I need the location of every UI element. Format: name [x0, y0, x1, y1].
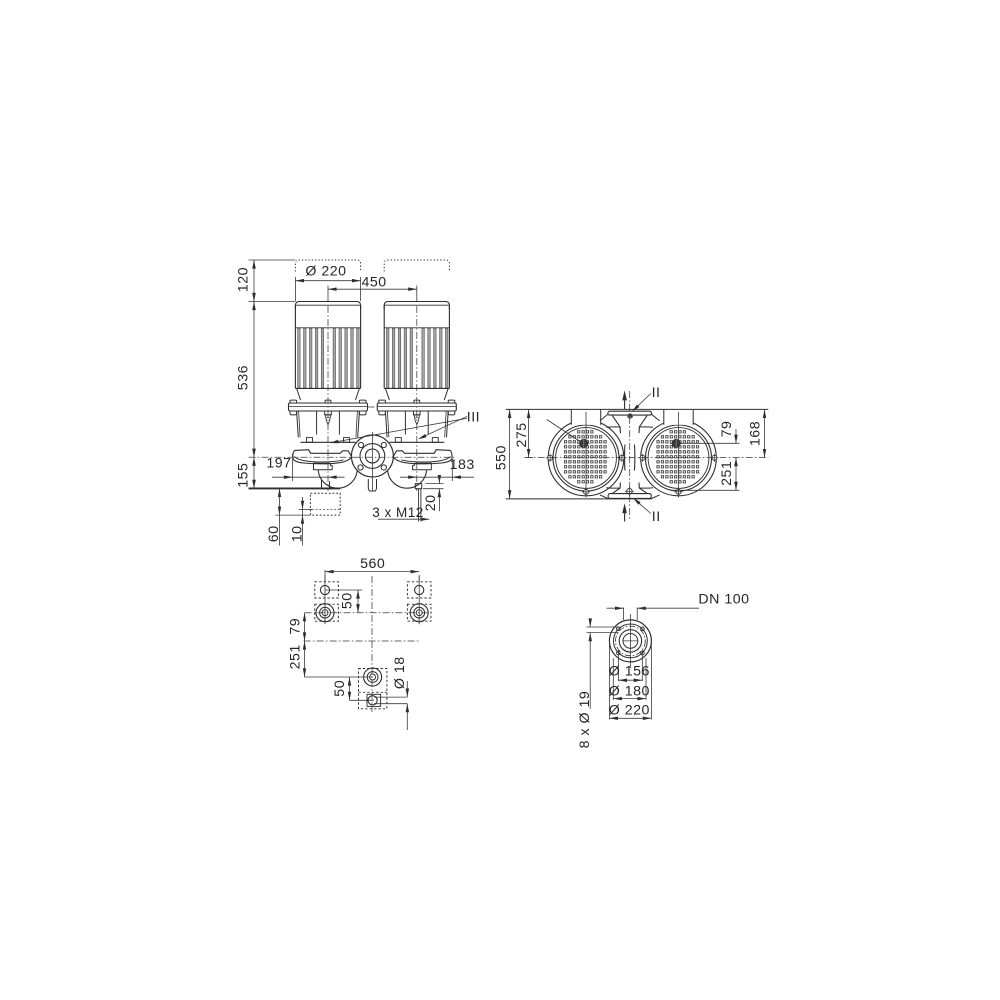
svg-text:Ø 220: Ø 220 — [305, 264, 346, 280]
svg-text:3 x M12: 3 x M12 — [372, 505, 424, 520]
svg-text:79: 79 — [719, 421, 735, 438]
svg-text:20: 20 — [423, 494, 439, 511]
svg-text:183: 183 — [450, 457, 475, 473]
svg-text:120: 120 — [236, 267, 252, 292]
svg-text:275: 275 — [514, 422, 530, 447]
svg-text:536: 536 — [236, 365, 252, 390]
svg-text:50: 50 — [332, 680, 348, 697]
svg-text:251: 251 — [719, 461, 735, 486]
svg-text:168: 168 — [747, 421, 763, 446]
svg-text:DN 100: DN 100 — [698, 591, 749, 607]
svg-text:50: 50 — [339, 592, 355, 609]
svg-text:450: 450 — [362, 275, 387, 291]
svg-text:Ø 220: Ø 220 — [609, 702, 650, 718]
svg-text:II: II — [652, 509, 661, 525]
svg-text:Ø 180: Ø 180 — [609, 684, 650, 700]
svg-text:Ø 156: Ø 156 — [609, 663, 650, 679]
svg-text:Ø 18: Ø 18 — [392, 656, 408, 689]
svg-text:60: 60 — [266, 525, 282, 542]
svg-text:197: 197 — [266, 456, 291, 472]
svg-text:10: 10 — [290, 525, 306, 542]
svg-text:550: 550 — [493, 445, 509, 470]
svg-text:155: 155 — [236, 463, 252, 488]
svg-text:8 x Ø 19: 8 x Ø 19 — [577, 691, 593, 749]
svg-text:79: 79 — [287, 618, 303, 635]
svg-text:251: 251 — [287, 644, 303, 669]
svg-text:560: 560 — [360, 556, 385, 572]
svg-text:III: III — [467, 410, 480, 426]
svg-text:II: II — [652, 385, 661, 401]
